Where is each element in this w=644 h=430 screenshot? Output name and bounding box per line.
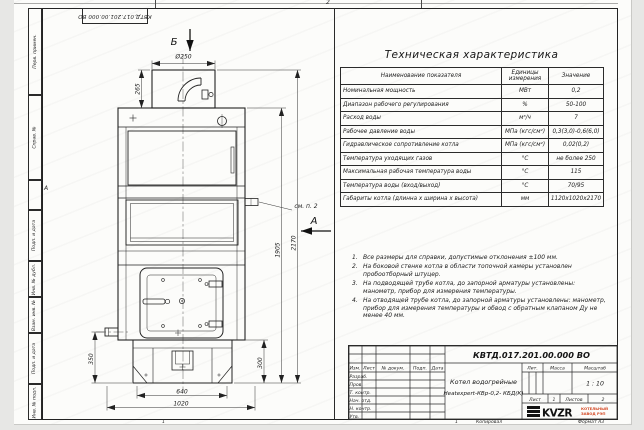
spec-row: Расход водым³/ч7 — [341, 112, 604, 126]
boiler-front-view: Ø250 265 2170 1905 300 350 640 1020 см. … — [42, 8, 334, 420]
title-block-doc-number: КВТД.017.201.00.000 ВО — [473, 350, 590, 360]
zone-mark-bottom-right: 1 — [455, 420, 458, 425]
svg-text:Масштаб: Масштаб — [584, 365, 606, 371]
svg-text:Н. контр.: Н. контр. — [350, 406, 372, 412]
spec-row: Максимальная рабочая температура воды°С1… — [341, 166, 604, 180]
frame-divider-line — [334, 8, 335, 420]
title-block-scale-value: 1 : 10 — [586, 381, 604, 388]
door-handle — [143, 299, 165, 304]
notes: 1.Все размеры для справки, допустимые от… — [352, 254, 610, 321]
callout-leader — [259, 202, 292, 210]
side-field-inv-dubl: Инв. № дубл. — [28, 261, 42, 297]
draft-elbow — [178, 78, 213, 101]
spec-header-value: Значение — [549, 68, 604, 85]
svg-text:Подп.: Подп. — [413, 365, 427, 371]
dim-chimney-height-label: 265 — [135, 83, 142, 95]
company-line1: КОТЕЛЬНЫЙ — [581, 406, 608, 411]
side-field-empty — [28, 180, 42, 210]
boiler-outline — [105, 70, 258, 383]
spec-header-name: Наименование показателя — [341, 68, 502, 85]
dim-pipe-height-label: 350 — [88, 353, 95, 365]
side-field-inv-podl: Инв. № подл. — [28, 384, 42, 420]
dim-base-width-label: 640 — [176, 389, 188, 396]
copied-label: Копировал — [476, 420, 502, 425]
svg-text:Изм.: Изм. — [350, 365, 361, 371]
drawing-sheet: 2 А КВТД.017.201.00.000 ВО Перв. примен.… — [0, 0, 644, 430]
sheet-top-edge — [14, 3, 618, 4]
svg-text:Листов: Листов — [564, 397, 582, 403]
dim-total-height-label: 2170 — [291, 235, 298, 250]
dimension-labels: Ø250 265 2170 1905 300 350 640 1020 см. … — [88, 54, 318, 408]
spec-table: Наименование показателя Единицы измерени… — [340, 67, 604, 207]
dimensions — [92, 61, 302, 411]
spec-section: Техническая характеристика Наименование … — [340, 49, 603, 207]
sampling-fitting — [245, 199, 258, 206]
svg-text:1: 1 — [553, 397, 556, 403]
company-logo: KVZR КОТЕЛЬНЫЙ ЗАВОД РЭП — [527, 406, 608, 420]
side-field-vzam-inv: Взам. инв. № — [28, 297, 42, 333]
boiler-base — [133, 340, 232, 383]
note-item: 4.На отводящей трубе котла, до запорной … — [352, 297, 610, 320]
svg-text:Нач. отд.: Нач. отд. — [350, 398, 372, 404]
door-hinge-top — [209, 281, 222, 287]
product-name-line2: Heatexpert-КВр-0,2- КБД(К) — [443, 391, 523, 397]
format-label: Формат А3 — [578, 420, 604, 425]
title-block: КВТД.017.201.00.000 ВО Изм. Лист № докум… — [348, 345, 618, 420]
svg-text:Утв.: Утв. — [350, 414, 360, 420]
dim-diameter-label: Ø250 — [174, 54, 191, 61]
view-arrows: Б А — [171, 29, 331, 231]
zone-tick — [421, 0, 422, 8]
svg-text:Лит.: Лит. — [526, 365, 538, 371]
note-item: 3.На подводящей трубе котла, до запорной… — [352, 280, 610, 295]
fire-door — [140, 268, 223, 338]
side-field-podp-data-1: Подп. и дата — [28, 210, 42, 261]
spec-row: Температура воды (вход/выход)°С70/95 — [341, 179, 604, 193]
svg-text:Дата: Дата — [431, 365, 444, 371]
svg-text:№ докум.: № докум. — [381, 365, 405, 371]
zone-mark-bottom-left: 1 — [162, 420, 165, 425]
svg-text:Масса: Масса — [550, 365, 565, 371]
spec-title: Техническая характеристика — [340, 49, 603, 61]
zone-mark-top: 2 — [326, 0, 330, 6]
chimney-collar — [152, 70, 215, 108]
svg-text:Лист: Лист — [362, 365, 375, 371]
logo-text: KVZR — [542, 408, 572, 420]
centerlines — [96, 54, 183, 392]
spec-row: Номинальная мощностьМВт0,2 — [341, 85, 604, 99]
spec-row: Температура уходящих газов°Сне более 250 — [341, 152, 604, 166]
door-hinge-bottom — [209, 321, 222, 327]
view-b-label: Б — [171, 37, 178, 48]
note-item: 2.На боковой стенке котла в области топо… — [352, 263, 610, 278]
note-item: 1.Все размеры для справки, допустимые от… — [352, 254, 610, 262]
company-line2: ЗАВОД РЭП — [581, 412, 605, 416]
product-name-line1: Котел водогрейные — [450, 378, 517, 386]
dim-total-width-label: 1020 — [173, 401, 188, 408]
spec-row: Рабочее давление водыМПа (кгс/см²)0,3(3,… — [341, 125, 604, 139]
svg-text:Пров.: Пров. — [350, 382, 363, 388]
spec-row: Диапазон рабочего регулирования%50-100 — [341, 98, 604, 112]
logo-stripes-icon — [527, 406, 540, 409]
upper-panel — [128, 131, 236, 185]
svg-text:Лист: Лист — [528, 397, 541, 403]
side-field-podp-data-2: Подп. и дата — [28, 333, 42, 384]
side-field-sprav-no: Справ. № — [28, 95, 42, 180]
svg-text:Т. контр.: Т. контр. — [350, 390, 371, 396]
zone-tick — [155, 0, 156, 8]
spec-row: Гидравлическое сопротивление котлаМПа (к… — [341, 139, 604, 153]
view-a-label: А — [310, 216, 318, 227]
svg-text:2: 2 — [602, 397, 605, 403]
svg-text:Разраб.: Разраб. — [350, 374, 368, 380]
spec-header-unit: Единицы измерения — [502, 68, 549, 85]
boiler-body — [118, 108, 245, 340]
lifting-marks — [130, 114, 227, 128]
spec-header-row: Наименование показателя Единицы измерени… — [341, 68, 604, 85]
callout-note2-label: см. п. 2 — [294, 203, 317, 210]
side-field-perv-primen: Перв. примен. — [28, 8, 42, 95]
spec-row: Габариты котла (длинна х ширина х высота… — [341, 193, 604, 207]
dim-body-height-label: 1905 — [275, 242, 282, 257]
dim-base-height-label: 300 — [257, 357, 264, 369]
